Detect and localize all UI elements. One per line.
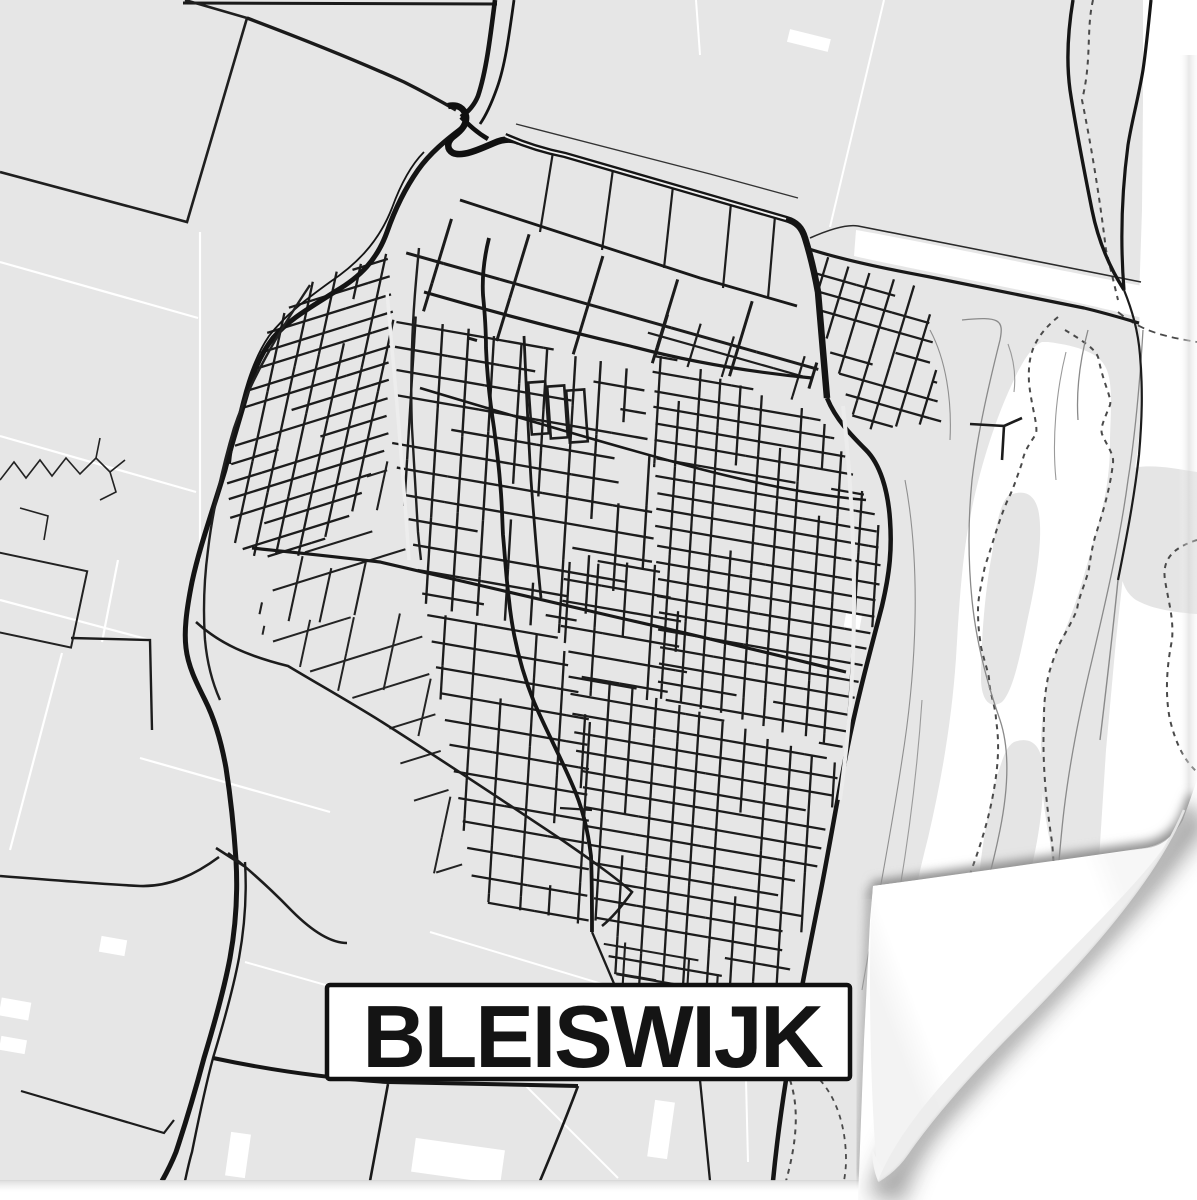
svg-text:BLEISWIJK: BLEISWIJK — [362, 987, 823, 1086]
